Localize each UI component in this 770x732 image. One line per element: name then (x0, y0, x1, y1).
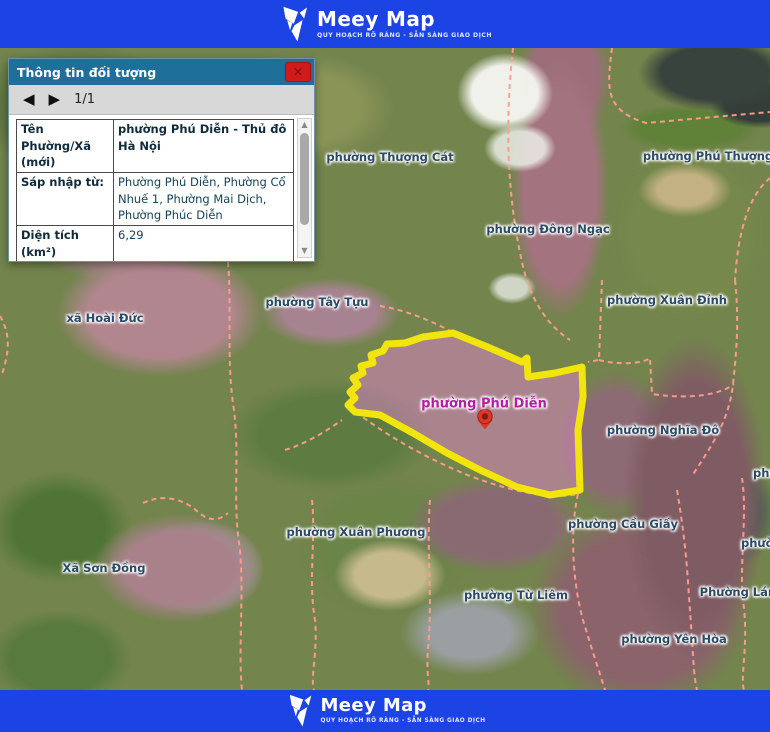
attribute-label: Sáp nhập từ: (17, 173, 114, 226)
ward-label-tay-tuu: phường Tây Tựu (266, 295, 369, 309)
ward-label-yen-hoa: phường Yên Hòa (621, 632, 726, 646)
ward-label-clipped-right-1: phư (753, 466, 770, 480)
info-popup: Thông tin đối tượng ✕ ◀ ▶ 1/1 Tên Phường… (8, 58, 315, 262)
ward-label-phu-dien-selected: phường Phú Diễn (421, 397, 547, 412)
attribute-value: Phường Phú Diễn, Phường Cổ Nhuế 1, Phườn… (114, 173, 294, 226)
brand-tagline: QUY HOẠCH RÕ RÀNG - SẴN SÀNG GIAO DỊCH (317, 33, 492, 39)
ward-boundary (609, 48, 770, 123)
ward-boundary (677, 490, 697, 690)
ward-boundary (735, 178, 770, 280)
attribute-label: Diện tích (km²) (17, 226, 114, 261)
ward-boundary (508, 48, 570, 340)
popup-title: Thông tin đối tượng (17, 65, 156, 80)
ward-boundary (285, 420, 342, 450)
ward-label-xuan-dinh: phường Xuân Đỉnh (607, 293, 727, 307)
ward-label-nghia-do: phường Nghĩa Đô (607, 423, 719, 437)
ward-boundary (143, 498, 228, 519)
ward-label-xuan-phuong: phường Xuân Phương (286, 525, 425, 539)
next-arrow-icon[interactable]: ▶ (49, 92, 61, 107)
table-row: Tên Phường/Xã (mới) phường Phú Diễn - Th… (17, 120, 294, 173)
ward-label-clipped-right-2: phườ (741, 536, 770, 550)
header-bar: Meey Map QUY HOẠCH RÕ RÀNG - SẴN SÀNG GI… (0, 0, 770, 48)
brand-text: Meey Map QUY HOẠCH RÕ RÀNG - SẴN SÀNG GI… (317, 9, 492, 39)
brand-name-footer: Meey Map (321, 697, 486, 715)
attribute-value: 6,29 (114, 226, 294, 261)
meey-map-logo-icon (278, 6, 308, 43)
close-icon[interactable]: ✕ (285, 62, 311, 82)
attribute-value: phường Phú Diễn - Thủ đô Hà Nội (114, 120, 294, 173)
popup-body: Tên Phường/Xã (mới) phường Phú Diễn - Th… (9, 115, 314, 261)
ward-label-lang: Phường Láng (700, 585, 770, 599)
scrollbar-thumb[interactable] (300, 133, 309, 225)
pager-indicator: 1/1 (74, 92, 95, 107)
attribute-table: Tên Phường/Xã (mới) phường Phú Diễn - Th… (16, 119, 294, 261)
ward-label-cau-giay: phường Cầu Giấy (568, 517, 678, 531)
brand-tagline-footer: QUY HOẠCH RÕ RÀNG - SẴN SÀNG GIAO DỊCH (321, 719, 486, 725)
footer-bar: Meey Map QUY HOẠCH RÕ RÀNG - SẴN SÀNG GI… (0, 690, 770, 732)
table-row: Sáp nhập từ: Phường Phú Diễn, Phường Cổ … (17, 173, 294, 226)
scroll-down-icon[interactable]: ▼ (298, 245, 311, 257)
ward-label-dong-ngac: phường Đông Ngạc (486, 222, 609, 236)
brand-text-footer: Meey Map QUY HOẠCH RÕ RÀNG - SẴN SÀNG GI… (321, 697, 486, 725)
ward-boundary (380, 306, 452, 332)
popup-scrollbar[interactable]: ▲ ▼ (297, 118, 312, 258)
brand-name: Meey Map (317, 9, 492, 29)
brand-lockup: Meey Map QUY HOẠCH RÕ RÀNG - SẴN SÀNG GI… (278, 6, 492, 43)
ward-label-hoai-duc: xã Hoài Đức (66, 311, 143, 325)
ward-label-thuong-cat: phường Thượng Cát (326, 150, 453, 164)
ward-boundary (427, 500, 430, 690)
brand-lockup-footer: Meey Map QUY HOẠCH RÕ RÀNG - SẴN SÀNG GI… (285, 694, 486, 728)
prev-arrow-icon[interactable]: ◀ (23, 92, 35, 107)
ward-label-phu-thuong: phường Phú Thượng (643, 149, 770, 163)
scroll-up-icon[interactable]: ▲ (298, 119, 311, 131)
popup-title-bar: Thông tin đối tượng (9, 59, 314, 85)
ward-boundary (0, 316, 8, 374)
ward-boundary (228, 262, 242, 690)
ward-label-son-dong: Xã Sơn Đồng (63, 561, 146, 575)
table-row: Diện tích (km²) 6,29 (17, 226, 294, 261)
ward-boundary (742, 478, 745, 690)
meey-map-logo-icon (285, 694, 312, 728)
selected-ward-polygon[interactable] (348, 333, 583, 495)
ward-boundary (692, 280, 737, 476)
app-window: Meey Map QUY HOẠCH RÕ RÀNG - SẴN SÀNG GI… (0, 0, 770, 732)
ward-label-tu-liem: phường Từ Liêm (464, 588, 568, 602)
popup-pager-bar: ◀ ▶ 1/1 (9, 85, 314, 115)
attribute-label: Tên Phường/Xã (mới) (17, 120, 114, 173)
